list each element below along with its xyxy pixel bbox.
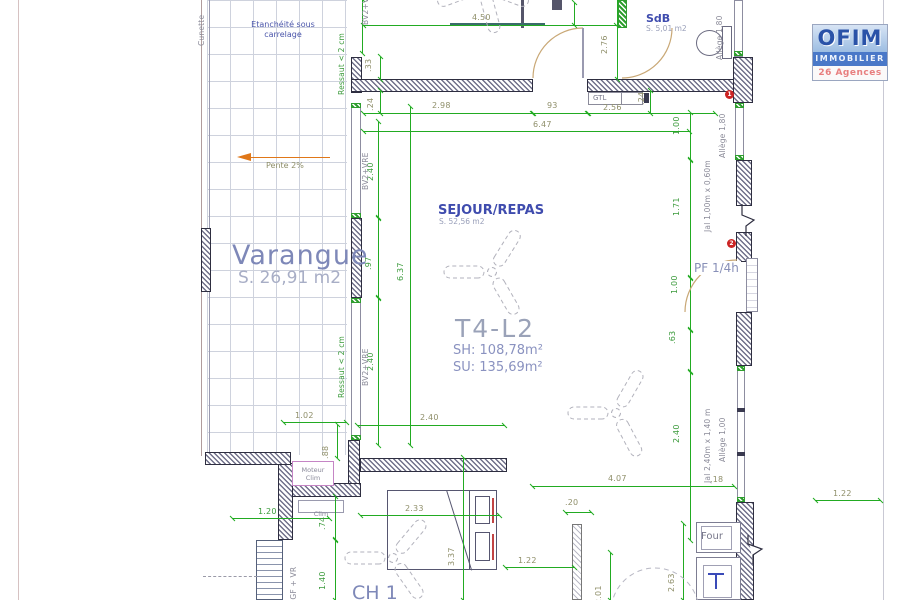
dim-label: .63 bbox=[668, 331, 678, 344]
dim-label: .88 bbox=[321, 446, 331, 459]
annotation-layer: 4.502.98932.566.471.022.402.331.204.07.1… bbox=[0, 0, 900, 600]
sill-height-label: Allège 1,80 bbox=[715, 15, 725, 60]
dim-label: 2.01 bbox=[594, 585, 604, 600]
dim-label: 2.76 bbox=[600, 35, 610, 54]
dim-label: 6.47 bbox=[533, 120, 552, 130]
sill-height-label: Allège 1,80 bbox=[718, 113, 728, 158]
dim-label: 1.20 bbox=[258, 507, 277, 517]
window-size-label: Jal 2,40m x 1,40 m bbox=[703, 409, 713, 483]
dim-label: 1.71 bbox=[672, 197, 682, 216]
dim-label: 1.00 bbox=[670, 275, 680, 294]
dim-label: .24 bbox=[366, 98, 376, 111]
dim-label: 4.07 bbox=[608, 474, 627, 484]
dim-label: 1.22 bbox=[833, 489, 852, 499]
dim-label: 1.22 bbox=[518, 556, 537, 566]
dim-label: 2.56 bbox=[603, 103, 622, 113]
window-size-label: Jal 1,00m x 0,60m bbox=[703, 160, 713, 232]
ressaut-label: Ressaut < 2 cm bbox=[337, 33, 347, 95]
window-type-label: BV2+VRE bbox=[361, 152, 371, 190]
shutter-label: en GF + VR bbox=[289, 567, 299, 600]
dim-label: 6.37 bbox=[396, 262, 406, 281]
dim-label: 3.37 bbox=[447, 547, 457, 566]
window-type-label: BV2+VRE bbox=[361, 348, 371, 386]
dim-label: 4.50 bbox=[472, 13, 491, 23]
dim-label: 1.00 bbox=[672, 116, 682, 135]
dim-label: .20 bbox=[565, 498, 578, 508]
ressaut-label: Ressaut < 2 cm bbox=[337, 336, 347, 398]
dim-label: 2.98 bbox=[432, 101, 451, 111]
door-window-marker: 2 bbox=[727, 239, 736, 248]
gutter-label: Cunette bbox=[197, 15, 207, 46]
dim-label: .24 bbox=[637, 92, 647, 105]
dim-label: 2.63 bbox=[667, 573, 677, 592]
sill-height-label: Allège 1,00 bbox=[718, 417, 728, 462]
dim-label: .74 bbox=[318, 517, 328, 530]
window-type-label: BV2+VRE bbox=[361, 0, 371, 25]
dim-label: 1.02 bbox=[295, 411, 314, 421]
floor-plan: GTL Moteur Clim Clim Four bbox=[0, 0, 900, 600]
dim-label: 2.40 bbox=[672, 424, 682, 443]
dim-label: 93 bbox=[547, 101, 558, 111]
dim-label: 1.40 bbox=[318, 571, 328, 590]
dim-label: 2.33 bbox=[405, 504, 424, 514]
dim-label: 2.40 bbox=[420, 413, 439, 423]
dim-label: .97 bbox=[364, 257, 374, 270]
door-window-marker: 1 bbox=[725, 90, 734, 99]
dim-label: .33 bbox=[364, 59, 374, 72]
